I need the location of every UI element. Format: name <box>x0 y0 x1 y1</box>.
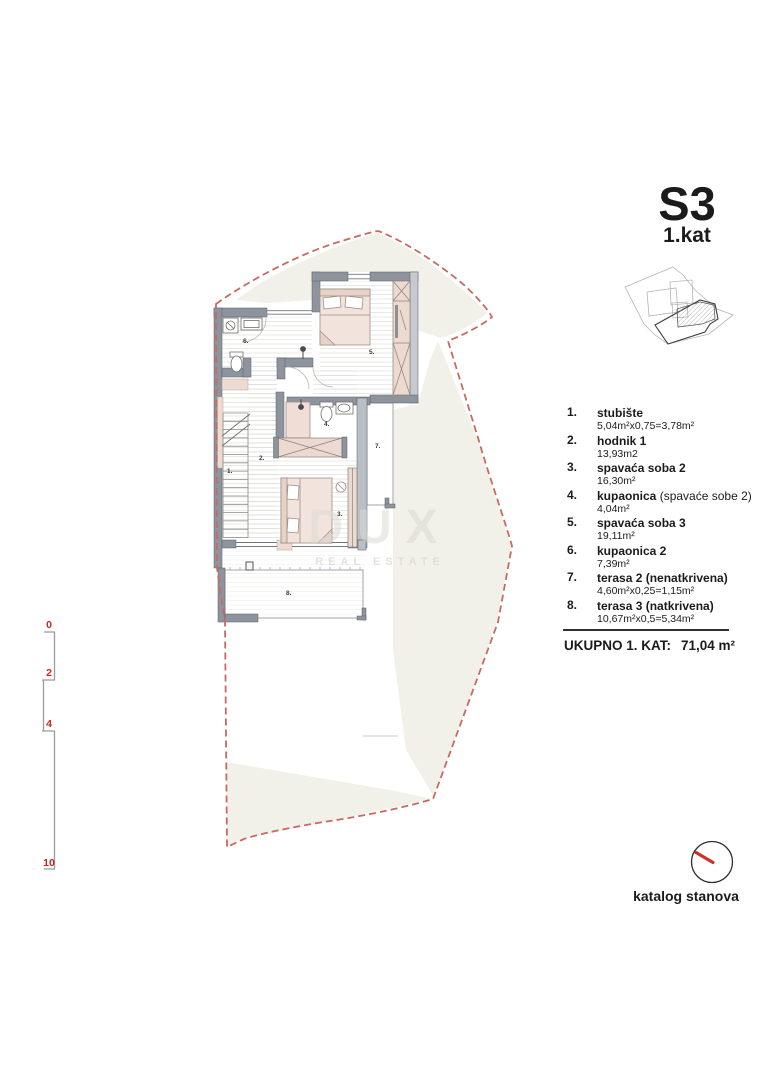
legend-area: 10,67m²x0,5=5,34m² <box>597 613 765 626</box>
total-area-value: 71,04 m² <box>681 638 735 653</box>
legend-number: 1. <box>567 406 597 433</box>
floor-label: 1.kat <box>618 224 756 248</box>
legend-item-8: 8. terasa 3 (natkrivena)10,67m²x0,5=5,34… <box>567 599 765 626</box>
legend-item-7: 7. terasa 2 (nenatkrivena)4,60m²x0,25=1,… <box>567 571 765 598</box>
scale-mark-10: 10 <box>43 857 55 869</box>
legend-name: stubište <box>597 406 643 420</box>
legend-name: terasa 2 (nenatkrivena) <box>597 571 728 585</box>
room-label-8: 8. <box>286 590 292 597</box>
legend-number: 4. <box>567 489 597 516</box>
room-legend: 1. stubište5,04m²x0,75=3,78m² 2. hodnik … <box>567 406 765 626</box>
legend-item-5: 5. spavaća soba 319,11m² <box>567 516 765 543</box>
legend-area: 4,04m² <box>597 503 765 516</box>
site-highlighted-unit <box>677 302 715 327</box>
legend-number: 5. <box>567 516 597 543</box>
legend-number: 7. <box>567 571 597 598</box>
scale-mark-4: 4 <box>46 718 52 730</box>
terrace-post <box>246 562 253 570</box>
wardrobe-room5 <box>393 281 410 395</box>
site-location-map <box>625 267 733 344</box>
legend-name: kupaonica <box>597 489 656 503</box>
scale-bar: 0 2 4 10 <box>42 619 55 869</box>
total-area-row: UKUPNO 1. KAT: 71,04 m² <box>564 638 764 653</box>
legend-area: 5,04m²x0,75=3,78m² <box>597 420 765 433</box>
legend-divider <box>563 629 729 631</box>
legend-area: 13,93m2 <box>597 448 765 461</box>
watermark-line1: DUX <box>308 501 451 554</box>
legend-item-6: 6. kupaonica 27,39m² <box>567 544 765 571</box>
legend-name: spavaća soba 3 <box>597 516 686 530</box>
room-label-1: 1. <box>227 468 233 475</box>
legend-name: kupaonica 2 <box>597 544 666 558</box>
legend-item-4: 4. kupaonica (spavaće sobe 2)4,04m² <box>567 489 765 516</box>
compass-needle <box>696 853 713 863</box>
total-area-label: UKUPNO 1. KAT: <box>564 638 671 653</box>
watermark-line2: REAL ESTATE <box>315 556 445 568</box>
legend-area: 19,11m² <box>597 530 765 543</box>
legend-name: hodnik 1 <box>597 434 646 448</box>
room-label-5: 5. <box>369 349 375 356</box>
scale-mark-0: 0 <box>46 619 52 631</box>
legend-number: 2. <box>567 434 597 461</box>
legend-area: 4,60m²x0,25=1,15m² <box>597 585 765 598</box>
legend-name: spavaća soba 2 <box>597 461 686 475</box>
room-label-6: 6. <box>243 338 249 345</box>
compass <box>692 842 733 883</box>
legend-name: terasa 3 (natkrivena) <box>597 599 714 613</box>
legend-number: 8. <box>567 599 597 626</box>
legend-name-suffix: (spavaće sobe 2) <box>656 489 751 503</box>
catalog-page: 1. 2. 3. 4. 5. 6. 7. 8. DUX REAL ESTATE … <box>0 0 765 1080</box>
bed-room5 <box>320 289 370 345</box>
legend-area: 7,39m² <box>597 558 765 571</box>
legend-item-3: 3. spavaća soba 216,30m² <box>567 461 765 488</box>
scale-mark-2: 2 <box>46 667 52 679</box>
room-label-2: 2. <box>259 455 265 462</box>
room-label-7: 7. <box>375 443 381 450</box>
legend-item-2: 2. hodnik 113,93m2 <box>567 434 765 461</box>
catalog-caption: katalog stanova <box>600 888 765 904</box>
unit-code: S3 <box>618 176 756 231</box>
legend-area: 16,30m² <box>597 475 765 488</box>
watermark: DUX REAL ESTATE <box>308 501 451 568</box>
legend-item-1: 1. stubište5,04m²x0,75=3,78m² <box>567 406 765 433</box>
room-label-4: 4. <box>324 421 330 428</box>
legend-number: 3. <box>567 461 597 488</box>
legend-number: 6. <box>567 544 597 571</box>
